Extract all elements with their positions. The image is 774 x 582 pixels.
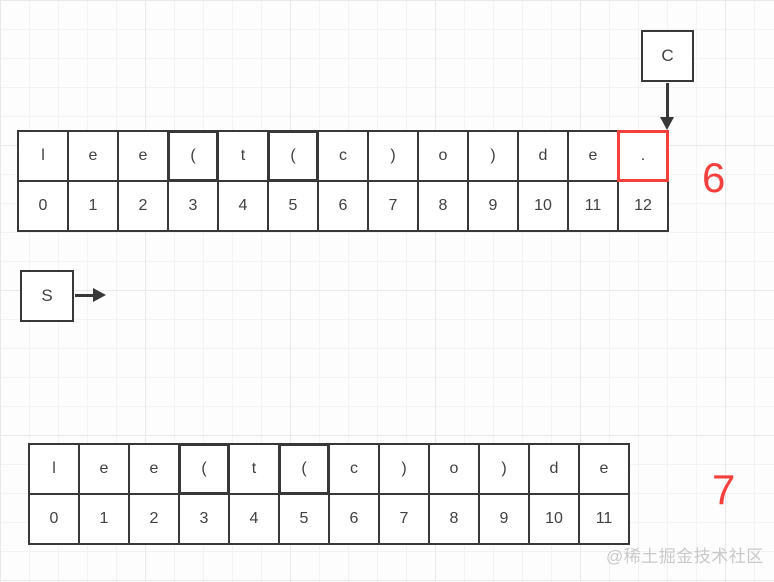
array-cell-index: 10 [528,493,580,545]
array-cell-char: ( [278,443,330,495]
array-cell-char: e [567,130,619,182]
array-cell-index: 4 [217,180,269,232]
array-cell-index: 2 [117,180,169,232]
array-cell-index: 6 [328,493,380,545]
array-cell-char: l [28,443,80,495]
bottom-array-chars-row: lee(t(c)o)de [28,443,630,495]
array-cell-char: ( [267,130,319,182]
array-cell-index: 4 [228,493,280,545]
array-cell-char: e [67,130,119,182]
array-cell-index: 9 [478,493,530,545]
array-cell-char: c [317,130,369,182]
array-cell-char: l [17,130,69,182]
array-cell-char: ) [478,443,530,495]
array-cell-char: ( [167,130,219,182]
c-pointer-label: C [661,46,673,66]
array-cell-char: e [78,443,130,495]
c-pointer-arrow-head-icon [660,117,674,130]
s-pointer-arrow-head-icon [93,288,106,302]
array-cell-char: ( [178,443,230,495]
array-cell-index: 3 [178,493,230,545]
array-cell-index: 7 [367,180,419,232]
array-cell-char: e [128,443,180,495]
array-cell-index: 12 [617,180,669,232]
array-cell-index: 0 [17,180,69,232]
watermark-text: @稀土掘金技术社区 [606,542,764,567]
array-cell-char: d [528,443,580,495]
array-cell-char: . [617,130,669,182]
array-cell-index: 2 [128,493,180,545]
array-cell-char: c [328,443,380,495]
array-cell-char: ) [467,130,519,182]
array-cell-index: 5 [267,180,319,232]
c-pointer-arrow-line [666,83,669,118]
array-cell-index: 9 [467,180,519,232]
c-pointer-box: C [641,30,694,82]
top-array-indices-row: 0123456789101112 [17,180,669,232]
array-cell-index: 5 [278,493,330,545]
array-cell-char: e [117,130,169,182]
array-cell-char: ) [367,130,419,182]
array-cell-char: e [578,443,630,495]
array-cell-char: o [428,443,480,495]
s-pointer-arrow-line [75,294,94,297]
count-label-bottom: 7 [712,469,735,511]
s-pointer-label: S [41,286,52,306]
array-cell-char: t [217,130,269,182]
array-cell-index: 3 [167,180,219,232]
array-cell-index: 1 [78,493,130,545]
array-cell-char: t [228,443,280,495]
count-label-top: 6 [702,157,725,199]
array-cell-index: 11 [578,493,630,545]
array-cell-index: 1 [67,180,119,232]
array-cell-char: o [417,130,469,182]
array-cell-char: ) [378,443,430,495]
diagram-canvas: C lee(t(c)o)de.0123456789101112 6 S lee(… [0,0,774,582]
array-cell-index: 10 [517,180,569,232]
char-array-bottom: lee(t(c)o)de01234567891011 [28,443,630,545]
bottom-array-indices-row: 01234567891011 [28,493,630,545]
s-pointer-box: S [20,270,74,322]
array-cell-char: d [517,130,569,182]
array-cell-index: 8 [417,180,469,232]
array-cell-index: 6 [317,180,369,232]
array-cell-index: 8 [428,493,480,545]
top-array-chars-row: lee(t(c)o)de. [17,130,669,182]
array-cell-index: 0 [28,493,80,545]
char-array-top: lee(t(c)o)de.0123456789101112 [17,130,669,232]
array-cell-index: 11 [567,180,619,232]
array-cell-index: 7 [378,493,430,545]
